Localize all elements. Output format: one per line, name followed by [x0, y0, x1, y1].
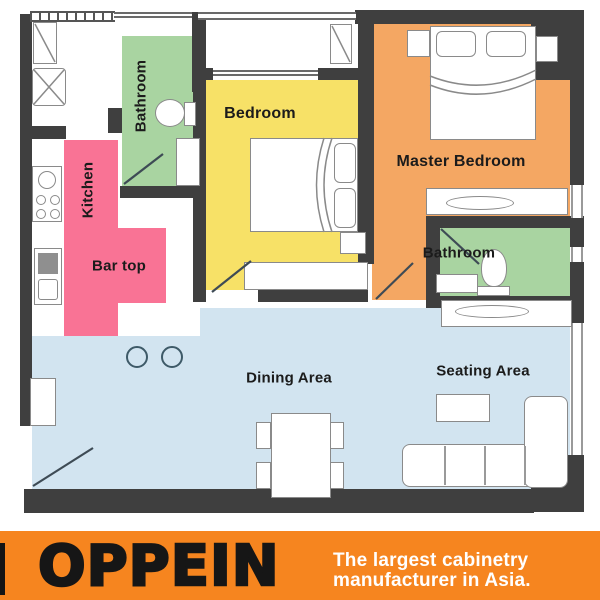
- stove-burner: [50, 195, 60, 205]
- desk: [244, 262, 368, 290]
- dryer: [32, 68, 66, 106]
- sofa-cushion-line: [444, 446, 446, 485]
- brand-tagline: The largest cabinetry manufacturer in As…: [333, 551, 531, 591]
- pillow: [334, 188, 356, 228]
- wall-segment: [355, 10, 535, 24]
- chair: [256, 462, 271, 489]
- stove-burner: [38, 171, 56, 189]
- nightstand: [536, 36, 558, 62]
- sofa-cushion-line: [484, 446, 486, 485]
- sofa-chaise: [524, 396, 568, 488]
- wall-segment: [258, 290, 368, 302]
- wall-segment: [193, 68, 213, 80]
- chair: [329, 462, 344, 489]
- nightstand: [407, 30, 430, 57]
- shower-tray: [176, 138, 200, 186]
- room-label-bathroom-left: Bathroom: [133, 60, 150, 132]
- pillow: [486, 31, 526, 57]
- banner-left-mark: [0, 543, 5, 595]
- wall-segment: [426, 216, 440, 308]
- pillow: [334, 143, 356, 183]
- stove-burner: [50, 209, 60, 219]
- window: [571, 323, 583, 455]
- washing-machine: [33, 22, 57, 64]
- toilet: [155, 99, 185, 127]
- window: [198, 12, 356, 20]
- toilet-base: [477, 286, 510, 296]
- chair: [329, 422, 344, 449]
- room-label-bar-top: Bar top: [92, 258, 146, 275]
- wall-segment: [570, 80, 584, 185]
- sink-basin: [446, 196, 514, 210]
- wall-segment: [20, 14, 32, 426]
- chair: [256, 422, 271, 449]
- wall-segment: [318, 68, 360, 80]
- bathroom-cabinet: [436, 274, 478, 293]
- wall-segment: [120, 186, 198, 198]
- wardrobe-cabinet: [330, 24, 352, 64]
- bar-stool: [161, 346, 183, 368]
- wall-segment: [570, 262, 584, 323]
- wall-segment: [426, 216, 584, 228]
- window: [30, 11, 115, 22]
- stove-burner: [36, 195, 46, 205]
- window: [114, 12, 192, 18]
- kitchen-sink-basin: [38, 253, 58, 274]
- wall-segment: [358, 24, 374, 264]
- room-label-bathroom-right: Bathroom: [423, 245, 495, 262]
- room-label-dining-area: Dining Area: [246, 370, 332, 387]
- room-label-master-bedroom: Master Bedroom: [396, 153, 525, 171]
- wall-segment: [192, 12, 206, 92]
- dining-table: [271, 413, 331, 498]
- nightstand: [340, 232, 366, 254]
- dish: [455, 305, 529, 318]
- wall-segment: [108, 108, 122, 133]
- floorplan-image: Bathroom Kitchen Bar top Bedroom Master …: [0, 0, 600, 600]
- toilet-tank: [184, 102, 196, 126]
- wall-segment: [20, 126, 66, 139]
- window: [571, 247, 583, 262]
- room-label-seating-area: Seating Area: [436, 363, 530, 380]
- tagline-line2: manufacturer in Asia.: [333, 571, 531, 591]
- bar-stool: [126, 346, 148, 368]
- room-master-bedroom: [372, 216, 426, 300]
- room-label-kitchen: Kitchen: [80, 162, 97, 218]
- coffee-table: [436, 394, 490, 422]
- sofa-cushion-line: [524, 446, 526, 485]
- kitchen-sink-basin: [38, 279, 58, 300]
- tagline-line1: The largest cabinetry: [333, 551, 531, 571]
- window: [571, 185, 583, 218]
- stove-burner: [36, 209, 46, 219]
- pillow: [436, 31, 476, 57]
- sliding-door: [213, 70, 318, 76]
- brand-logo: OPPEIN: [38, 534, 280, 599]
- room-label-bedroom: Bedroom: [224, 105, 296, 123]
- entry-cabinet: [30, 378, 56, 426]
